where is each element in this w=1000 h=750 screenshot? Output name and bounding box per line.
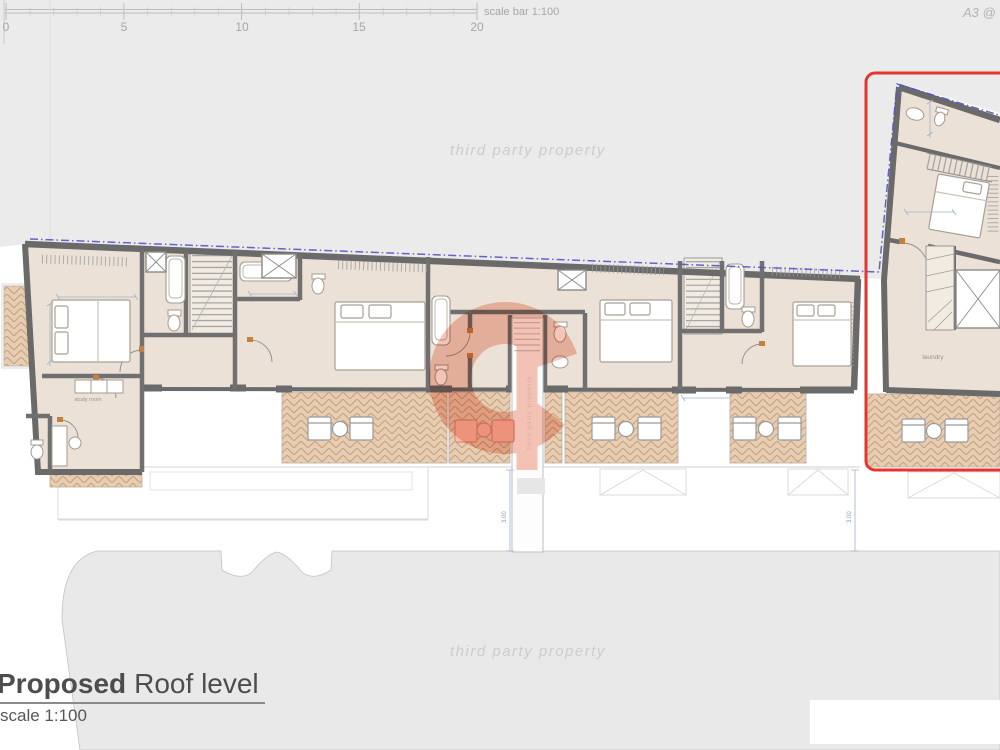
- third-party-area-top: [0, 0, 1000, 279]
- scalebar-tick-10: 10: [235, 20, 248, 34]
- scalebar-tick-20: 20: [470, 20, 483, 34]
- logo-vertical-text: third party property: [526, 375, 533, 450]
- scalebar-tick-15: 15: [352, 20, 365, 34]
- drawing-title-rest: Roof level: [134, 668, 259, 699]
- scalebar-tick-0: 0: [3, 20, 10, 34]
- titleblock-blank-area: [810, 700, 1000, 744]
- room-label-study: study room: [74, 397, 102, 403]
- dimension-label: 3.00: [502, 511, 508, 523]
- watermark-top: third party property: [450, 142, 606, 159]
- drawing-title: ProposedRoof level: [0, 668, 265, 704]
- dimension-label: 3.00: [847, 511, 853, 523]
- scalebar-label: scale bar 1:100: [484, 6, 559, 18]
- sheet-size-note: A3 @: [963, 5, 996, 20]
- floor-plan-canvas: 3.00 3.00 study room laundry third party…: [0, 0, 1000, 750]
- room-label-laundry: laundry: [922, 354, 944, 361]
- watermark-bottom: third party property: [450, 643, 606, 660]
- drawing-title-bold: Proposed: [0, 668, 126, 699]
- drawing-sheet: 3.00 3.00 study room laundry third party…: [0, 0, 1000, 750]
- drawing-scale-note: scale 1:100: [0, 706, 87, 726]
- scalebar-tick-5: 5: [121, 20, 128, 34]
